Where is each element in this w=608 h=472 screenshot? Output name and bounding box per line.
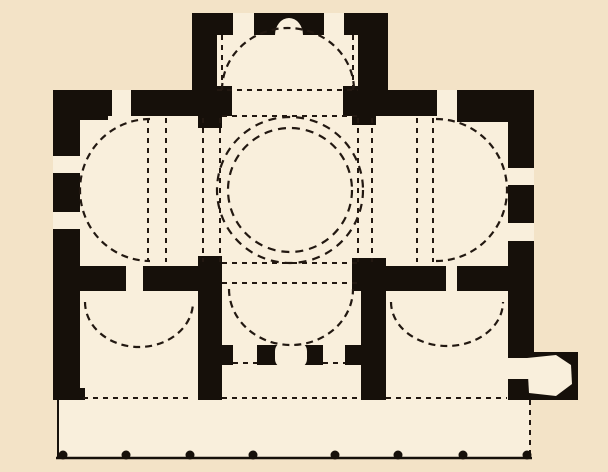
naos-south-wall-b: [143, 266, 222, 291]
window-west-2: [53, 212, 80, 229]
door-annex: [508, 358, 530, 379]
porch-column-bases-7: [459, 451, 468, 460]
sw-room-east-wall: [198, 291, 222, 400]
porch-column-bases-2: [122, 451, 131, 460]
porch-column-bases-5: [331, 451, 340, 460]
window-east-1: [508, 168, 534, 185]
porch-column-bases-6: [394, 451, 403, 460]
apse-room-floor: [217, 35, 358, 116]
window-north-east: [437, 90, 457, 116]
door-naos-to-sw: [126, 266, 143, 291]
south-portal-base: [275, 342, 307, 368]
se-crossing-pier: [352, 258, 386, 291]
door-naos-to-se: [446, 266, 457, 291]
porch-column-bases-4: [249, 451, 258, 460]
ne-corner-block: [457, 90, 508, 122]
porch-column-bases-1: [59, 451, 68, 460]
window-west-1: [53, 156, 80, 173]
window-east-2: [508, 223, 534, 241]
window-apse-right: [324, 13, 344, 35]
church-floor-plan-drawing: [0, 0, 608, 472]
nw-corner-block: [80, 90, 108, 120]
porch-column-bases-3: [186, 451, 195, 460]
south-wall-foot-left: [53, 388, 85, 400]
floor-plan-figure: [0, 0, 608, 472]
naos-south-wall-c: [386, 266, 446, 291]
west-wall: [53, 90, 80, 400]
naos-south-wall-d: [457, 266, 508, 291]
nw-crossing-pier: [198, 116, 222, 128]
porch-column-bases-8: [523, 451, 532, 460]
naos-south-wall-a: [53, 266, 126, 291]
se-room-west-wall: [361, 291, 386, 400]
window-apse-left: [233, 13, 254, 35]
naos-floor: [80, 116, 508, 266]
porch-floor: [58, 400, 530, 458]
window-north-west: [112, 90, 131, 116]
